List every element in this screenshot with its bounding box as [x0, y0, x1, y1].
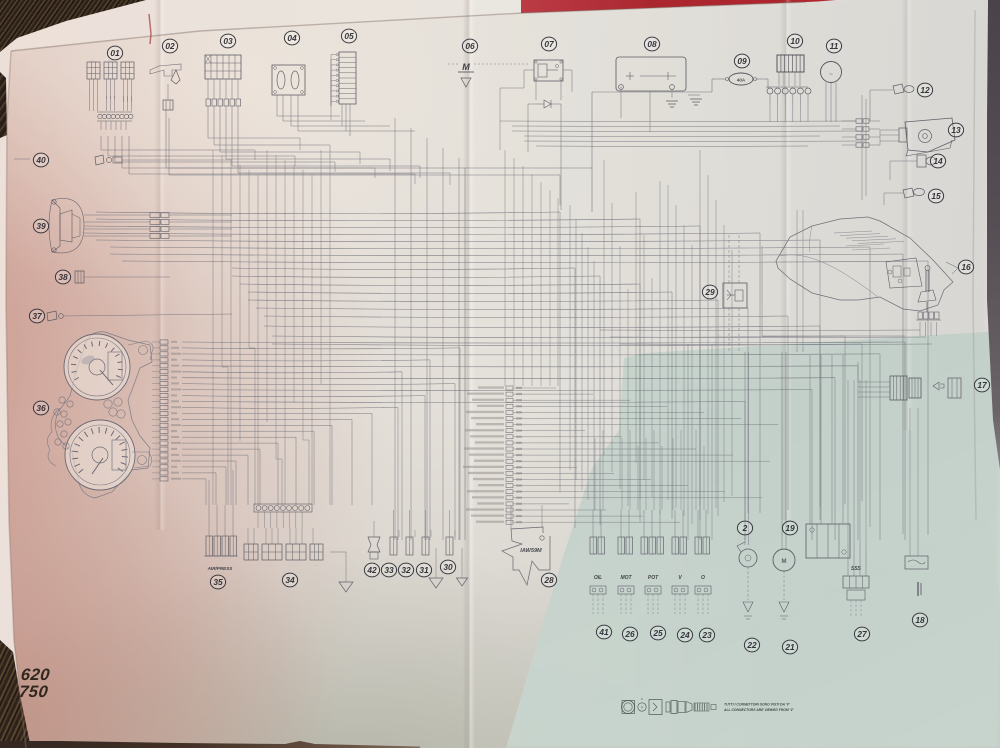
svg-text:..: ..	[847, 141, 849, 144]
svg-text:..: ..	[537, 91, 539, 94]
svg-text:POT: POT	[648, 575, 659, 581]
svg-text:..: ..	[719, 334, 721, 337]
svg-text:....: ....	[125, 58, 129, 62]
svg-text:..: ..	[892, 187, 894, 190]
svg-text:06: 06	[465, 41, 475, 51]
svg-text:c: c	[641, 697, 643, 701]
svg-text:16: 16	[961, 262, 971, 272]
svg-text:..: ..	[741, 244, 743, 247]
svg-text:..: ..	[623, 99, 625, 102]
svg-text:..: ..	[731, 244, 733, 247]
svg-text:...: ...	[346, 108, 348, 111]
svg-text:15: 15	[931, 191, 941, 201]
svg-text:32: 32	[401, 565, 411, 575]
svg-text:....: ....	[295, 564, 298, 567]
svg-text:42: 42	[366, 565, 377, 575]
svg-text:..: ..	[89, 309, 91, 312]
svg-text:..: ..	[756, 89, 758, 92]
svg-text:21: 21	[784, 642, 795, 652]
svg-text:22: 22	[746, 640, 757, 650]
svg-text:..: ..	[126, 132, 128, 135]
svg-text:38: 38	[58, 272, 68, 282]
svg-text:V: V	[641, 706, 644, 710]
svg-text:27: 27	[856, 629, 867, 639]
svg-text:AIR/PRESS: AIR/PRESS	[207, 566, 234, 571]
svg-text:26: 26	[624, 629, 635, 639]
svg-text:02: 02	[165, 41, 175, 51]
svg-text:OIL: OIL	[594, 575, 602, 581]
svg-text:....: ....	[91, 58, 95, 62]
svg-text:04: 04	[287, 33, 297, 43]
svg-text:M: M	[782, 559, 787, 565]
svg-text:..: ..	[729, 341, 731, 344]
svg-text:30: 30	[443, 562, 453, 572]
svg-text:24: 24	[679, 630, 690, 640]
svg-text:10: 10	[790, 36, 800, 46]
svg-text:ALL CONNECTORS ARE VIEWED FROM: ALL CONNECTORS ARE VIEWED FROM 'V'	[723, 708, 794, 712]
svg-text:05: 05	[344, 31, 354, 41]
svg-text:..: ..	[847, 117, 849, 120]
svg-text:41: 41	[598, 627, 609, 637]
svg-text:IAW59M: IAW59M	[520, 548, 542, 554]
svg-text:....: ....	[250, 564, 253, 567]
svg-text:31: 31	[419, 565, 429, 575]
svg-text:12: 12	[920, 85, 930, 95]
svg-text:..: ..	[169, 155, 171, 158]
svg-text:35: 35	[213, 577, 223, 587]
svg-text:29: 29	[704, 287, 715, 297]
svg-text:MOT: MOT	[620, 575, 632, 581]
svg-text:..: ..	[839, 94, 841, 97]
svg-text:...: ...	[167, 114, 169, 117]
svg-text:....: ....	[271, 564, 274, 567]
svg-text:36: 36	[36, 403, 46, 413]
svg-text:2: 2	[742, 523, 748, 533]
svg-text:..: ..	[847, 133, 849, 136]
svg-text:..: ..	[562, 95, 564, 98]
svg-text:13: 13	[951, 125, 961, 135]
svg-text:..: ..	[115, 132, 117, 135]
svg-text:01: 01	[110, 48, 120, 58]
svg-text:11: 11	[830, 41, 839, 51]
svg-text:M: M	[462, 62, 470, 72]
svg-text:..: ..	[175, 225, 177, 228]
svg-text:..: ..	[175, 211, 177, 214]
svg-text:..: ..	[847, 125, 849, 128]
svg-text:..: ..	[103, 132, 105, 135]
svg-text:40A: 40A	[737, 78, 746, 83]
svg-text:23: 23	[701, 630, 712, 640]
svg-text:..: ..	[175, 218, 177, 221]
svg-text:39: 39	[36, 221, 46, 231]
svg-text:07: 07	[544, 39, 554, 49]
svg-text:28: 28	[543, 575, 554, 585]
svg-text:14: 14	[933, 156, 943, 166]
svg-text:40: 40	[35, 155, 46, 165]
svg-text:..: ..	[912, 89, 914, 93]
svg-text:09: 09	[737, 56, 747, 66]
svg-text:~: ~	[829, 72, 833, 78]
svg-text:03: 03	[223, 36, 233, 46]
svg-text:34: 34	[285, 575, 295, 585]
svg-text:O: O	[701, 575, 705, 581]
svg-text:25: 25	[652, 628, 663, 638]
svg-text:..: ..	[871, 378, 873, 381]
svg-text:33: 33	[384, 565, 394, 575]
svg-text:V: V	[678, 575, 682, 581]
svg-text:18: 18	[915, 615, 925, 625]
svg-text:19: 19	[785, 523, 795, 533]
svg-text:..: ..	[99, 272, 101, 275]
svg-text:..: ..	[175, 232, 177, 235]
svg-text:..: ..	[139, 155, 141, 158]
svg-text:....: ....	[315, 564, 318, 567]
svg-text:TUTTI I CONNETTORI SONO VISTI: TUTTI I CONNETTORI SONO VISTI DA 'V'	[724, 703, 790, 707]
svg-text:17: 17	[977, 380, 987, 390]
svg-text:08: 08	[647, 39, 657, 49]
svg-text:37: 37	[32, 311, 42, 321]
